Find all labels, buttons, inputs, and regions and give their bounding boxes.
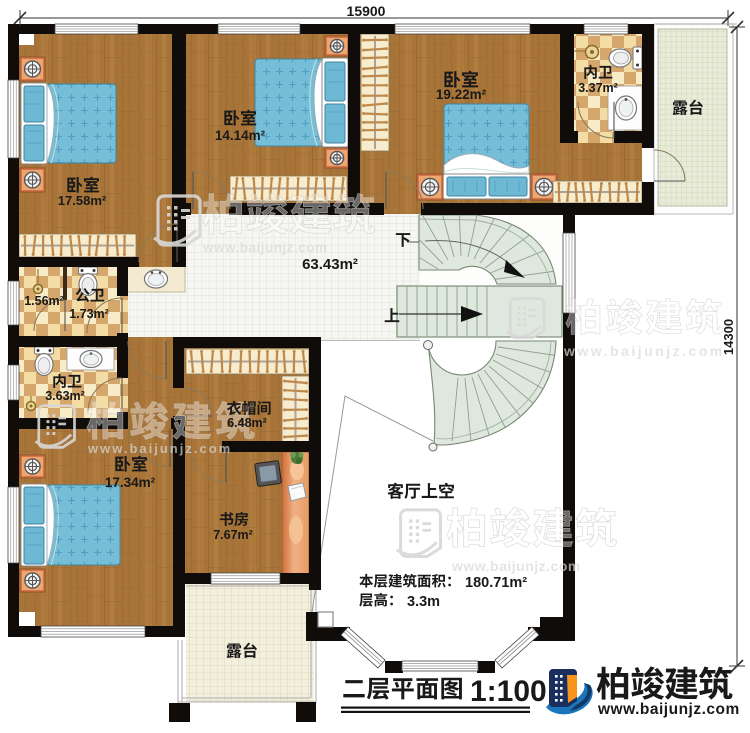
svg-text:14.14m²: 14.14m² (215, 128, 266, 143)
svg-text:www.baijunjz.com: www.baijunjz.com (597, 701, 740, 718)
svg-text:www.baijunjz.com: www.baijunjz.com (451, 558, 581, 574)
svg-text:63.43m²: 63.43m² (302, 256, 358, 273)
svg-text:1.73m²: 1.73m² (69, 307, 109, 321)
svg-text:www.baijunjz.com: www.baijunjz.com (87, 441, 232, 456)
svg-text:www.baijunjz.com: www.baijunjz.com (202, 240, 328, 255)
svg-text:3.37m²: 3.37m² (578, 81, 618, 95)
svg-text:www.baijunjz.com: www.baijunjz.com (563, 343, 725, 359)
svg-text:7.67m²: 7.67m² (213, 528, 253, 542)
svg-text:17.34m²: 17.34m² (105, 475, 156, 490)
svg-text:3.3m: 3.3m (407, 594, 440, 610)
svg-text:3.63m²: 3.63m² (45, 389, 85, 403)
svg-text:19.22m²: 19.22m² (436, 87, 487, 102)
svg-text:1.56m²: 1.56m² (24, 294, 64, 308)
svg-text:180.71m²: 180.71m² (465, 575, 527, 591)
svg-text:6.48m²: 6.48m² (227, 416, 267, 430)
svg-text:1:100: 1:100 (470, 675, 547, 708)
svg-text:15900: 15900 (347, 3, 386, 19)
svg-text:17.58m²: 17.58m² (58, 193, 107, 208)
